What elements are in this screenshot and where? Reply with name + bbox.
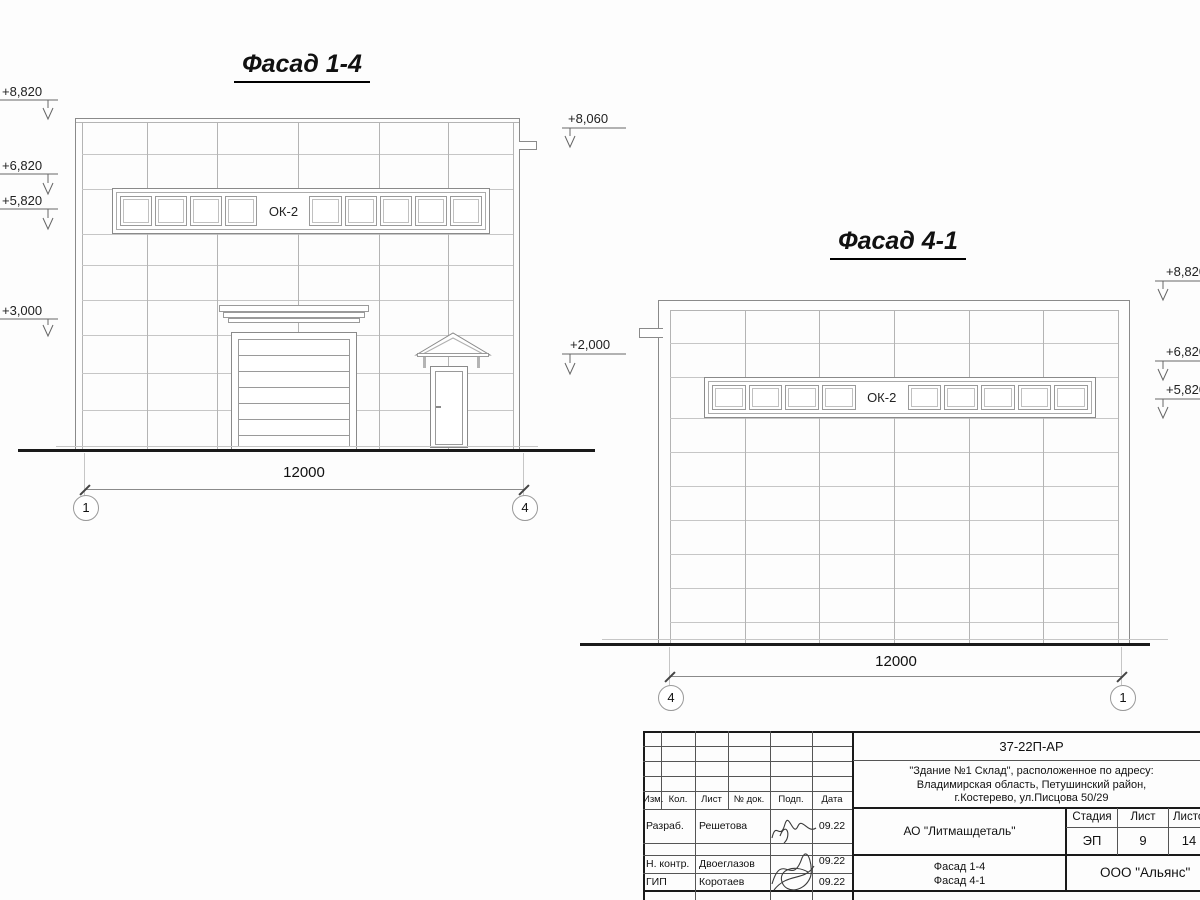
elevation-arrow-icon <box>0 208 62 231</box>
window-cell <box>981 385 1015 410</box>
elevation-arrow-icon <box>1155 360 1200 382</box>
mullion-line <box>217 122 218 449</box>
plinth-line <box>56 446 538 447</box>
gate-canopy <box>228 318 360 323</box>
plinth-line <box>602 639 1168 640</box>
wall-line <box>670 310 671 644</box>
rev-col-header: № док. <box>728 791 770 809</box>
document-number: 37-22П-АР <box>853 736 1200 758</box>
window-band-label: ОК-2 <box>260 196 306 226</box>
window-band: ОК-2 <box>112 188 490 234</box>
elevation-arrow-icon <box>1155 398 1200 420</box>
staff-role: Разраб. <box>646 809 695 843</box>
sheet-title-line: Фасад 1-4 <box>853 861 1066 875</box>
elevation-label: +3,000 <box>2 303 42 318</box>
door-leaf <box>435 371 463 445</box>
stamp-border <box>643 731 1200 733</box>
axis-bubble: 4 <box>512 495 538 521</box>
mullion-line <box>1043 310 1044 643</box>
dimension-line <box>85 489 524 490</box>
ground-line <box>18 449 595 452</box>
parapet-drain <box>639 328 663 338</box>
address-line: Владимирская область, Петушинский район, <box>853 779 1200 793</box>
window-cell <box>415 196 447 226</box>
elevation-label: +6,820 <box>1166 344 1200 359</box>
rev-col-header: Подп. <box>770 791 812 809</box>
signature-icon <box>766 808 818 846</box>
drawing-sheet: Фасад 1-4 ОК-2 <box>0 0 1200 900</box>
dimension-text: 12000 <box>836 653 956 670</box>
organization-name: ООО "Альянс" <box>1100 855 1200 891</box>
sheets-col-header: Листов <box>1173 808 1200 827</box>
staff-name: Двоеглазов <box>699 855 769 873</box>
mullion-line <box>379 122 380 449</box>
extension-line <box>669 647 670 685</box>
wall-line <box>75 118 76 450</box>
wall-line <box>1129 300 1130 644</box>
wall-line <box>513 122 514 450</box>
window-cell <box>1054 385 1088 410</box>
left-facade-title: Фасад 1-4 <box>234 50 370 83</box>
staff-name: Коротаев <box>699 873 769 891</box>
gate-canopy <box>219 305 369 312</box>
elevation-arrow-icon <box>1155 280 1200 302</box>
wall-line <box>519 118 520 450</box>
dimension-tick <box>1116 671 1127 682</box>
dimension-tick <box>664 671 675 682</box>
rev-col-header: Изм. <box>643 791 662 809</box>
address-line: г.Костерево, ул.Писцова 50/29 <box>853 792 1200 806</box>
ground-line <box>580 643 1150 646</box>
stage-value: ЭП <box>1067 827 1117 855</box>
extension-line <box>1121 647 1122 685</box>
dimension-text: 12000 <box>244 464 364 481</box>
stamp-line <box>643 776 852 777</box>
axis-bubble: 1 <box>73 495 99 521</box>
window-band-label: ОК-2 <box>859 385 905 410</box>
mullion-line <box>969 310 970 643</box>
window-cell <box>309 196 341 226</box>
axis-bubble: 1 <box>1110 685 1136 711</box>
elevation-label: +5,820 <box>1166 382 1200 397</box>
elevation-label: +8,820 <box>1166 264 1200 279</box>
rev-col-header: Кол. <box>661 791 695 809</box>
window-cell <box>749 385 783 410</box>
staff-name: Решетова <box>699 809 769 843</box>
wall-line <box>82 122 83 450</box>
elevation-arrow-icon <box>0 318 62 338</box>
window-cell <box>908 385 942 410</box>
door-handle <box>436 406 441 408</box>
right-facade-title: Фасад 4-1 <box>830 227 966 260</box>
client-name: АО "Литмашдеталь" <box>853 808 1066 855</box>
elevation-arrow-icon <box>556 127 626 149</box>
project-address: "Здание №1 Склад", расположенное по адре… <box>853 765 1200 806</box>
window-cell <box>450 196 482 226</box>
rev-col-header: Лист <box>695 791 728 809</box>
axis-bubble: 4 <box>658 685 684 711</box>
window-cell <box>190 196 222 226</box>
address-line: "Здание №1 Склад", расположенное по адре… <box>853 765 1200 779</box>
wall-line <box>658 300 1130 301</box>
canopy-bracket <box>477 357 480 368</box>
sheet-value: 9 <box>1118 827 1168 855</box>
stamp-line <box>643 746 852 747</box>
window-cell <box>155 196 187 226</box>
staff-role: ГИП <box>646 873 698 891</box>
door <box>430 366 468 448</box>
dimension-tick <box>518 484 529 495</box>
canopy-bracket <box>423 357 426 368</box>
wall-line <box>658 300 659 644</box>
window-cell <box>712 385 746 410</box>
mullion-line <box>894 310 895 643</box>
elevation-label: +6,820 <box>2 158 42 173</box>
dimension-line <box>670 676 1122 677</box>
window-cell <box>1018 385 1052 410</box>
elevation-label: +8,060 <box>568 111 608 126</box>
sheet-title-line: Фасад 4-1 <box>853 875 1066 889</box>
staff-role: Н. контр. <box>646 855 698 873</box>
sheet-col-header: Лист <box>1118 808 1168 827</box>
window-cell <box>380 196 412 226</box>
elevation-arrow-icon <box>556 353 626 376</box>
window-cell <box>822 385 856 410</box>
rev-col-header: Дата <box>812 791 852 809</box>
stamp-border <box>643 731 645 900</box>
window-cell <box>120 196 152 226</box>
parapet-drain <box>519 141 537 150</box>
window-band: ОК-2 <box>704 377 1096 418</box>
mullion-line <box>819 310 820 643</box>
staff-date: 09.22 <box>812 809 852 843</box>
elevation-arrow-icon <box>0 99 62 121</box>
dimension-tick <box>79 484 90 495</box>
elevation-label: +2,000 <box>570 337 610 352</box>
stamp-line <box>853 760 1200 761</box>
signature-icon <box>764 842 822 896</box>
sheet-title: Фасад 1-4 Фасад 4-1 <box>853 861 1066 888</box>
wall-line <box>1118 310 1119 644</box>
window-cell <box>345 196 377 226</box>
window-cell <box>785 385 819 410</box>
wall-line <box>75 118 520 119</box>
elevation-label: +5,820 <box>2 193 42 208</box>
window-cell <box>225 196 257 226</box>
elevation-label: +8,820 <box>2 84 42 99</box>
gate <box>231 332 357 450</box>
sheets-value: 14 <box>1168 827 1200 855</box>
gate-slats <box>238 339 350 447</box>
mullion-line <box>147 122 148 449</box>
stamp-line <box>643 761 852 762</box>
window-cell <box>944 385 978 410</box>
stage-col-header: Стадия <box>1067 808 1117 827</box>
mullion-line <box>745 310 746 643</box>
